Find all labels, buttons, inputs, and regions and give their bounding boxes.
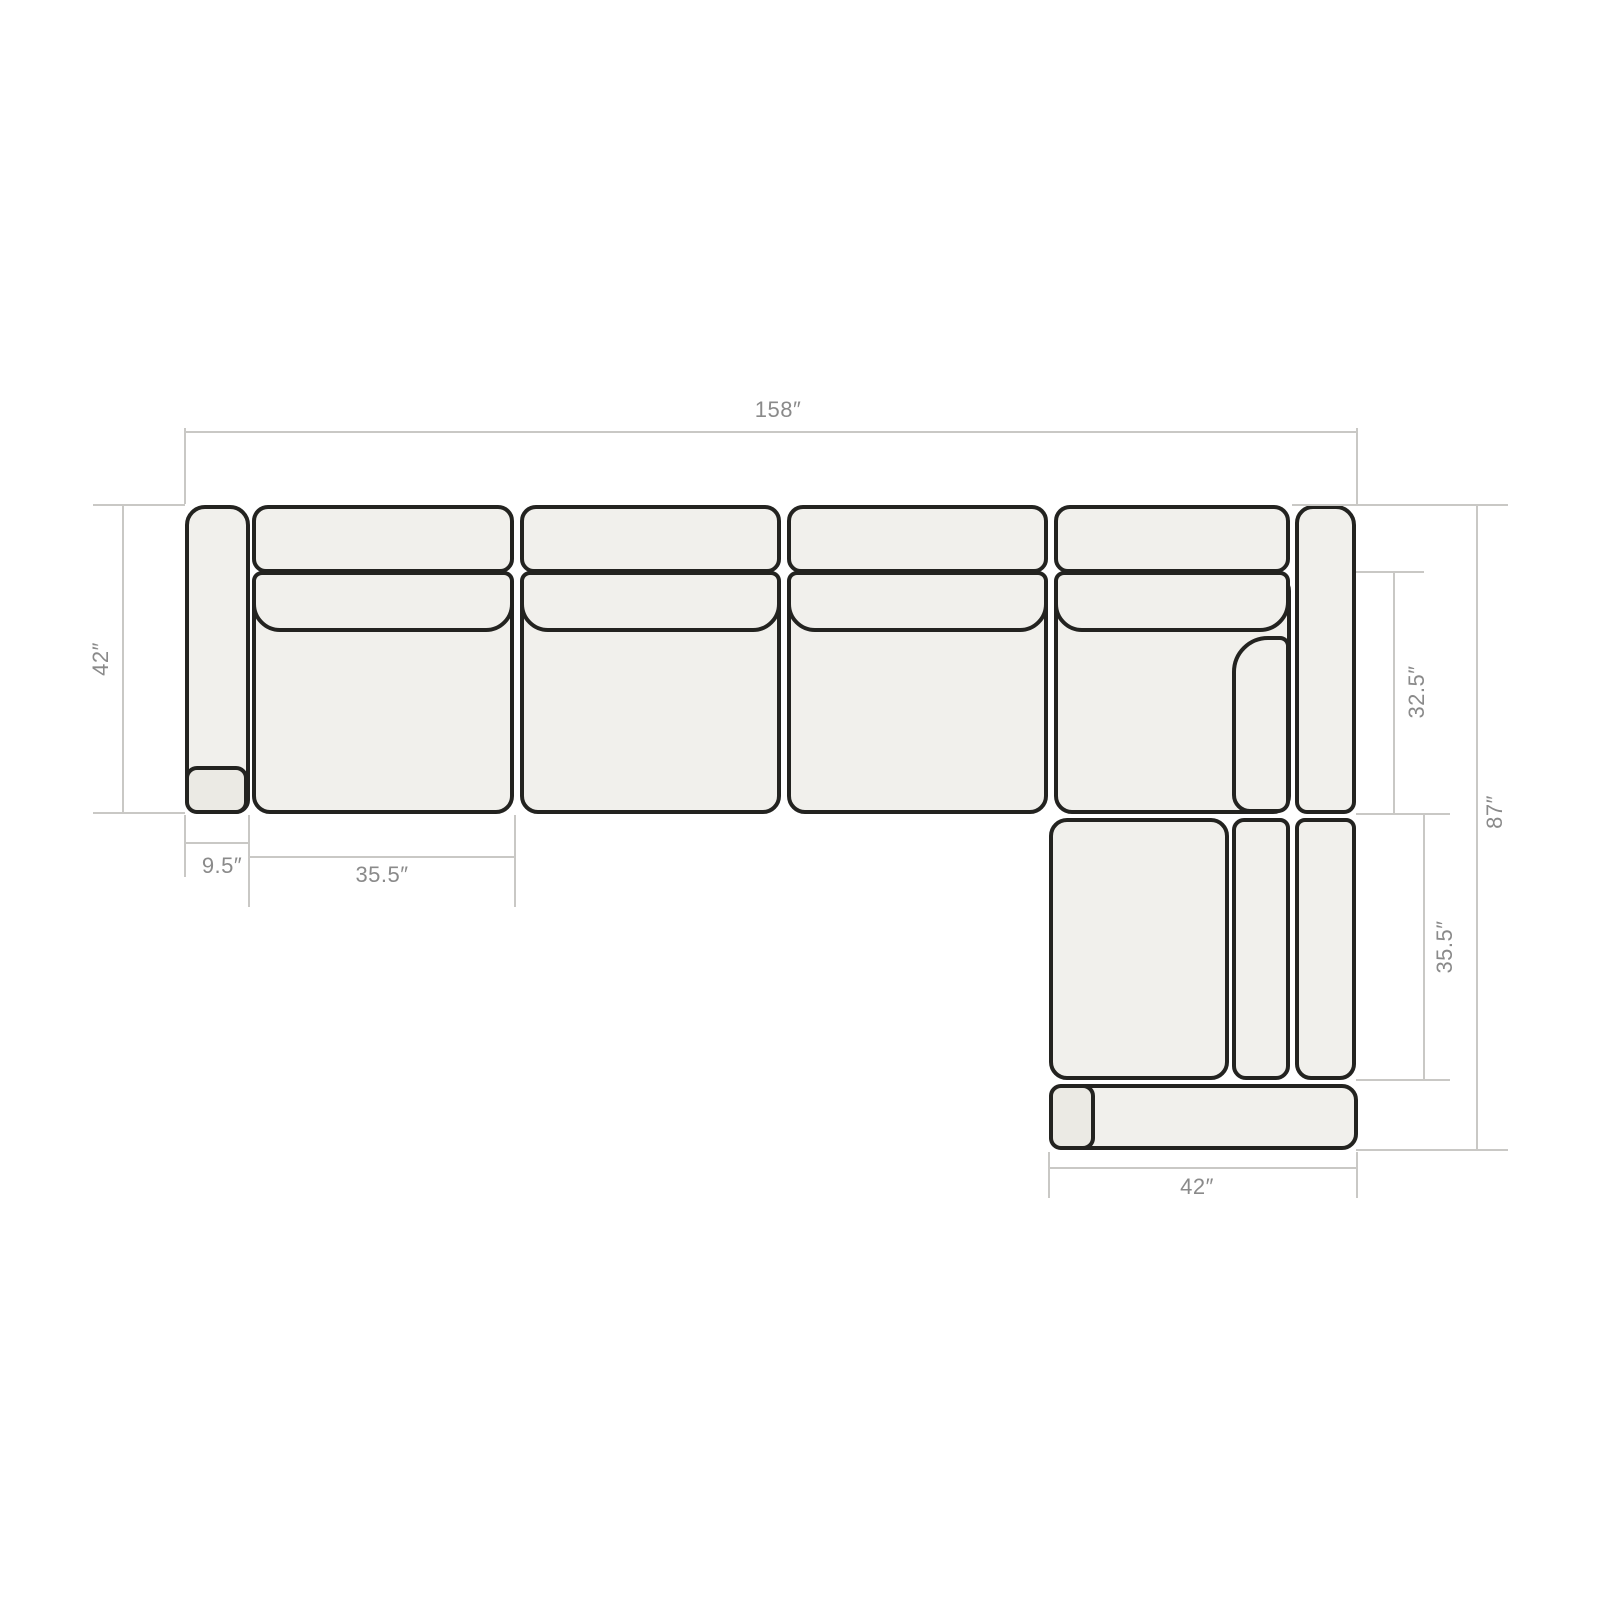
chaise-side-back-cushion	[1232, 818, 1290, 1080]
corner-side-back-cushion	[1232, 636, 1290, 813]
dim-label-seat-width: 35.5″	[355, 862, 408, 888]
dim-line-sofa-depth	[122, 504, 124, 814]
dim-line-chaise-width	[1048, 1167, 1358, 1169]
dim-label-chaise-width: 42″	[1180, 1174, 1214, 1200]
dim-label-sofa-depth: 42″	[88, 642, 114, 676]
back-cushion-2	[520, 505, 781, 573]
ext-line-chaise-width-left	[1048, 1152, 1050, 1198]
ext-line-seat-width-right	[514, 815, 516, 907]
dim-line-arm-width	[184, 842, 250, 844]
dim-label-total-depth: 87″	[1482, 795, 1508, 829]
dim-line-chaise-length	[1423, 813, 1425, 1081]
dim-label-total-width: 158″	[755, 397, 802, 423]
inner-back-cushion-3	[787, 571, 1048, 632]
ext-line-arm-width-left	[184, 815, 186, 877]
front-arm-end-panel	[1049, 1084, 1095, 1150]
ext-line-sofa-depth-top	[93, 504, 185, 506]
dim-label-corner-seat-depth: 32.5″	[1404, 665, 1430, 718]
ext-line-total-width-left	[184, 428, 186, 504]
inner-back-cushion-2	[520, 571, 781, 632]
chaise-seat	[1049, 818, 1229, 1080]
ext-line-total-width-right	[1356, 428, 1358, 504]
corner-inner-back-cushion	[1054, 571, 1290, 632]
dim-label-arm-width: 9.5″	[202, 853, 242, 879]
dim-line-total-depth	[1476, 504, 1478, 1151]
corner-back-cushion	[1054, 505, 1290, 573]
ext-line-arm-width-right	[248, 815, 250, 907]
back-cushion-1	[252, 505, 514, 573]
back-cushion-3	[787, 505, 1048, 573]
inner-back-cushion-1	[252, 571, 514, 632]
dim-line-seat-width	[248, 856, 516, 858]
ext-line-corner-depth-top	[1356, 571, 1424, 573]
dim-line-total-width	[184, 431, 1358, 433]
left-arm-front-panel	[185, 766, 248, 814]
dim-label-chaise-seat-length: 35.5″	[1432, 920, 1458, 973]
sofa-dimension-diagram: 158″ 42″ 9.5″ 35.5″ 32.5″ 35.5″ 87″ 42″	[0, 0, 1600, 1600]
dim-line-corner-depth	[1393, 571, 1395, 815]
right-arm-upper	[1295, 505, 1356, 814]
ext-line-corner-chaise-shared	[1356, 813, 1450, 815]
ext-line-chaise-width-right	[1356, 1152, 1358, 1198]
ext-line-total-depth-bottom	[1356, 1149, 1508, 1151]
right-arm-lower	[1295, 818, 1356, 1080]
ext-line-sofa-depth-bottom	[93, 812, 185, 814]
front-arm	[1049, 1084, 1358, 1150]
ext-line-chaise-length-bottom	[1356, 1079, 1450, 1081]
